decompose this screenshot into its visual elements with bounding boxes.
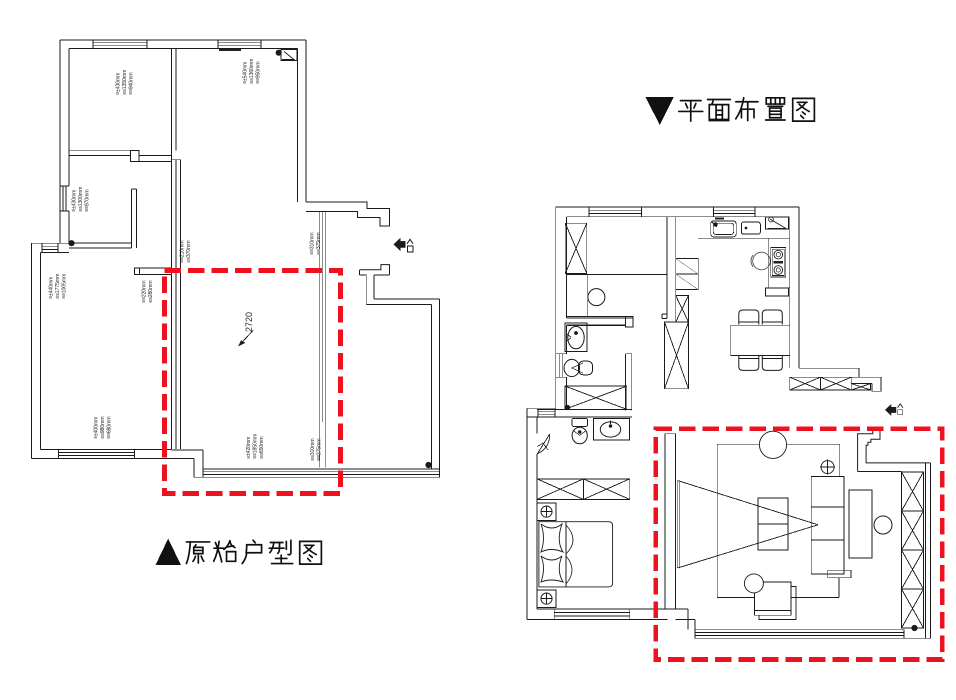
svg-text:≡≡1350mm: ≡≡1350mm [122,69,128,95]
svg-text:≡≡220mm: ≡≡220mm [142,280,148,303]
svg-text:≡≡970mm: ≡≡970mm [85,189,91,212]
svg-text:≡≡310mm: ≡≡310mm [310,232,316,255]
svg-text:≡≡650mm: ≡≡650mm [259,436,265,459]
svg-text:≡±430mm: ≡±430mm [72,189,78,212]
svg-text:≡±430mm: ≡±430mm [116,72,122,95]
svg-text:≡≡280mm: ≡≡280mm [148,280,154,303]
svg-text:≡±440mm: ≡±440mm [49,276,55,299]
svg-text:≡≡375mm: ≡≡375mm [316,232,322,255]
svg-text:≡≡1775mm: ≡≡1775mm [55,273,61,299]
svg-text:≡≡980mm: ≡≡980mm [100,416,106,439]
svg-text:≡≡375mm: ≡≡375mm [316,438,322,461]
svg-text:2720: 2720 [244,312,254,332]
svg-text:≡≡370mm: ≡≡370mm [186,240,192,263]
svg-text:≡±400mm: ≡±400mm [94,416,100,439]
svg-text:≡≡950mm: ≡≡950mm [256,61,262,84]
svg-text:≡≡680mm: ≡≡680mm [107,416,113,439]
svg-text:≡≡1850mm: ≡≡1850mm [253,433,259,459]
svg-text:≡±540mm: ≡±540mm [243,61,249,84]
svg-text:≡≡210mm: ≡≡210mm [180,240,186,263]
svg-text:≡±420mm: ≡±420mm [246,436,252,459]
svg-text:≡≡940mm: ≡≡940mm [129,72,135,95]
svg-text:≡≡1005mm: ≡≡1005mm [62,273,68,299]
svg-text:≡≡1360mm: ≡≡1360mm [249,58,255,84]
svg-text:≡≡1300mm: ≡≡1300mm [78,186,84,212]
svg-text:≡≡310mm: ≡≡310mm [310,438,316,461]
